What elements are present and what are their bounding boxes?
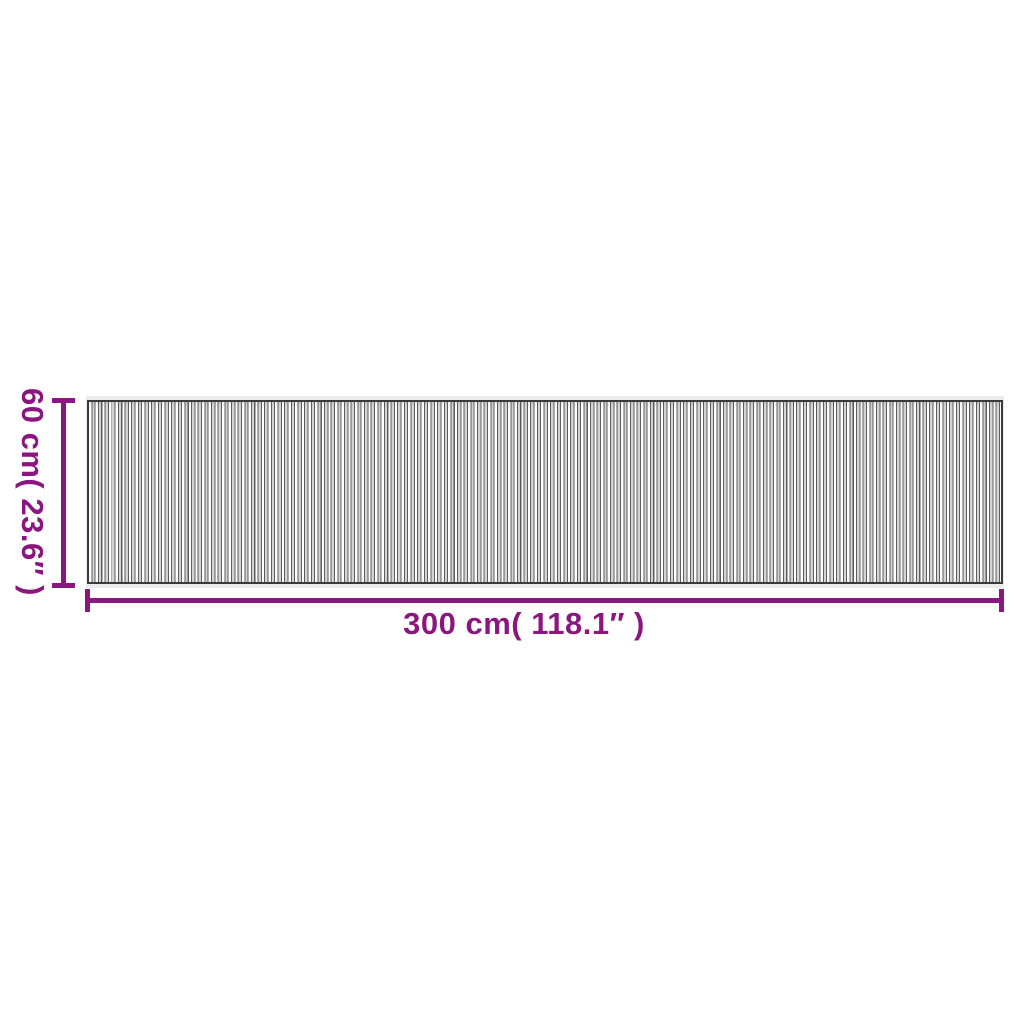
height-dimension-line [61,398,66,588]
width-dimension-label: 300 cm( 118.1″ ) [403,606,645,642]
rug-top-view [86,396,1004,588]
product-dimension-diagram: 60 cm( 23.6″ ) 300 cm( 118.1″ ) [0,0,1024,1024]
height-dimension-label: 60 cm( 23.6″ ) [14,388,50,596]
rug-slats-pattern [87,400,1003,584]
width-dimension-line [85,598,1004,603]
